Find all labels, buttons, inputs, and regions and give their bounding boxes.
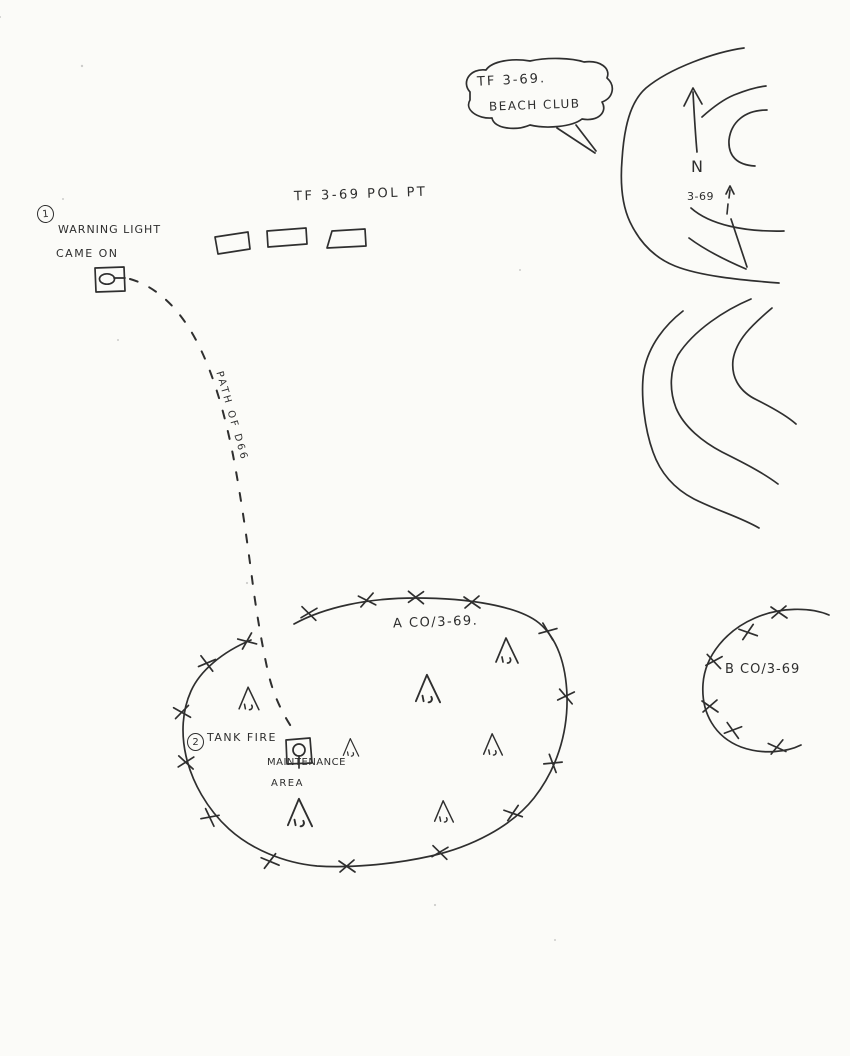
tent-icons xyxy=(239,638,518,826)
sketch-drawing-layer xyxy=(0,0,850,1056)
event1-label-line1: WARNING LIGHT xyxy=(58,224,161,236)
paper-specks xyxy=(0,16,556,941)
event2-number: 2 xyxy=(192,737,198,748)
tank-icon xyxy=(95,267,125,292)
b-company-label: B CO/3-69 xyxy=(725,663,800,677)
b-company-perimeter-x-marks xyxy=(702,606,787,754)
pol-pad-rectangles xyxy=(215,228,366,254)
event2-number-badge: 2 xyxy=(187,733,204,751)
terrain-contour-lines xyxy=(621,48,796,528)
hand-drawn-sketch-map: TF 3-69. BEACH CLUB TF 3-69 POL PT 1 WAR… xyxy=(0,0,850,1056)
north-arrow-icon xyxy=(684,88,702,152)
maintenance-label-line2: AREA xyxy=(271,778,304,789)
maintenance-label-line1: MAINTENANCE xyxy=(267,757,346,768)
event2-label: TANK FIRE xyxy=(207,732,277,744)
a-company-label: A CO/3-69. xyxy=(393,615,479,632)
north-unit-label: 3-69 xyxy=(687,191,714,203)
event1-number: 1 xyxy=(42,208,49,220)
event1-label-line2: CAME ON xyxy=(56,248,119,260)
b-company-perimeter xyxy=(703,609,829,751)
north-letter: N xyxy=(691,158,703,176)
